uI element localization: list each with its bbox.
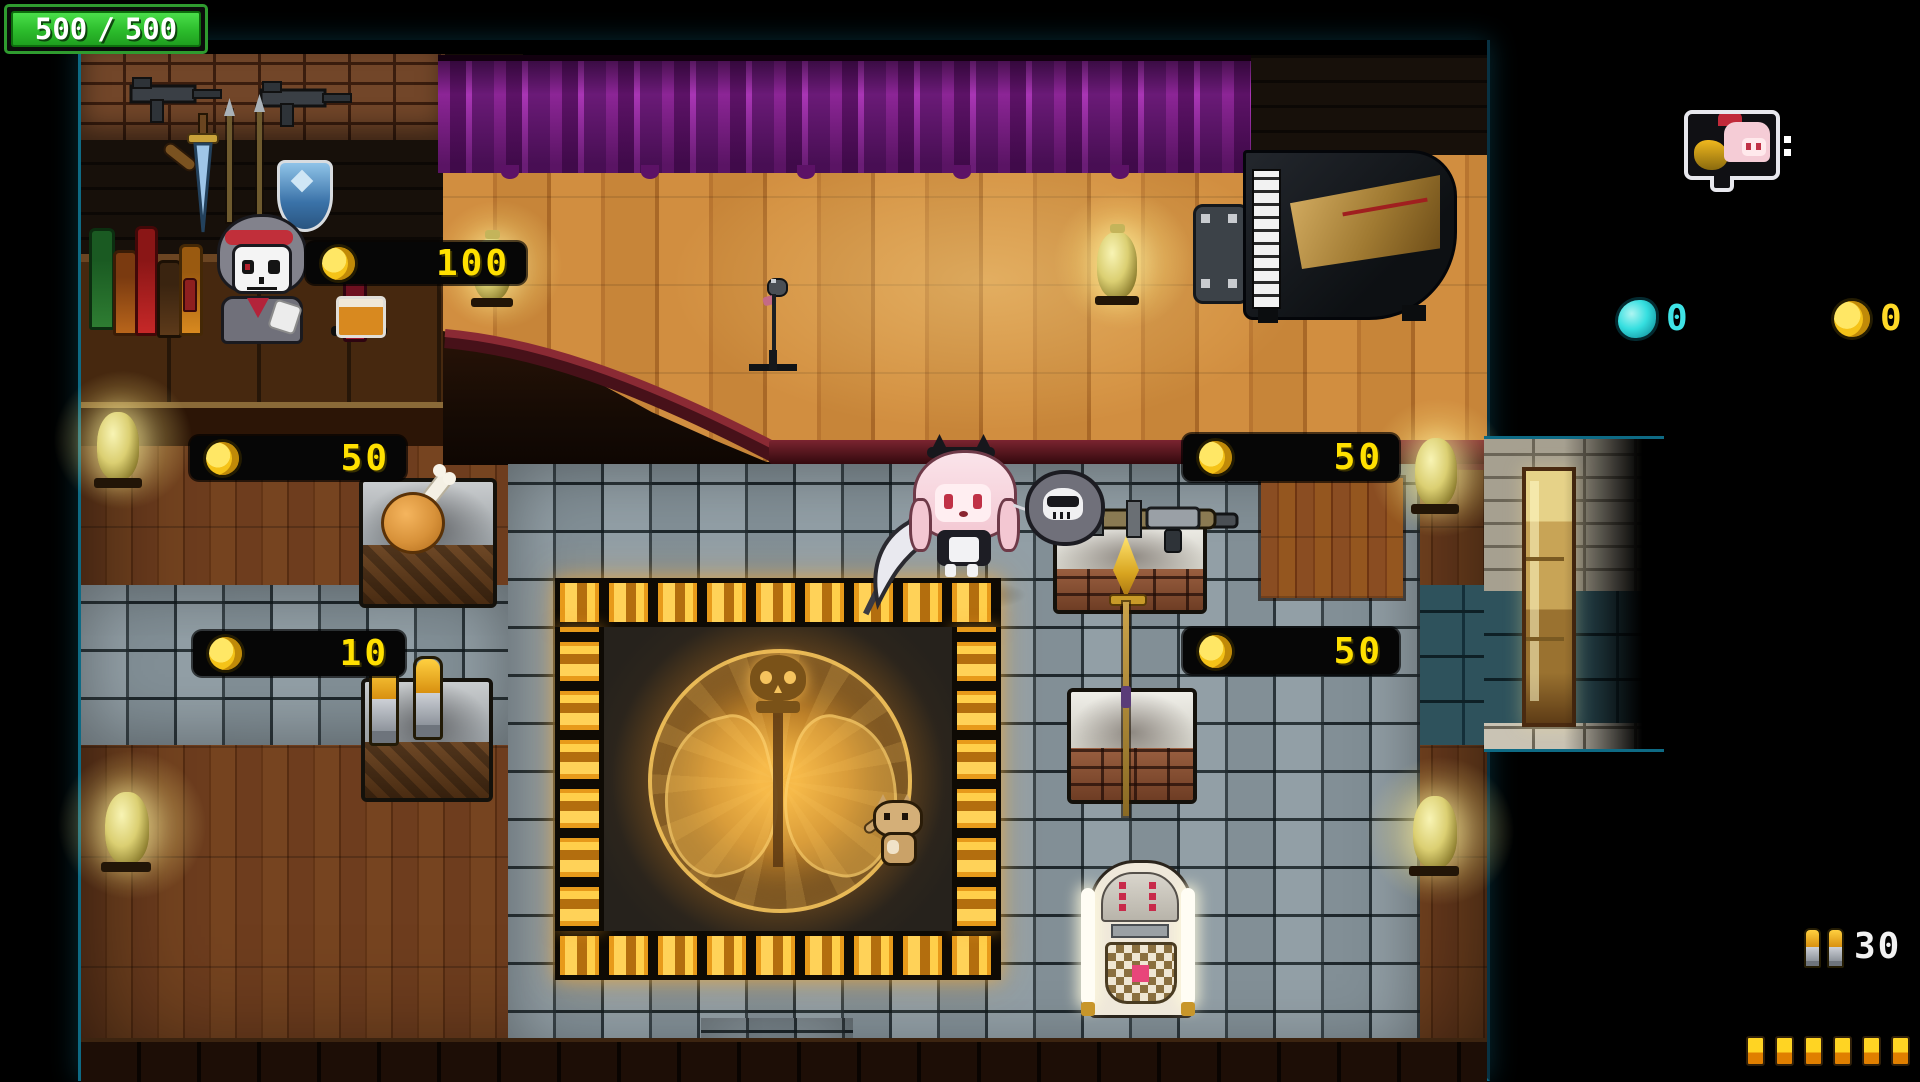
game-scene: 100 50 10 50 50 — [0, 0, 1920, 1080]
teal-tile-strip — [1420, 585, 1487, 745]
urn-finial — [1110, 224, 1125, 233]
golden-urn-lamp — [97, 412, 139, 480]
shield-emblem — [291, 170, 314, 193]
urn-base — [94, 478, 142, 488]
golden-urn-lamp — [1415, 438, 1457, 506]
curtain-fold — [501, 165, 519, 179]
health-separator: / — [97, 12, 114, 46]
rifle-bullets-icon — [1804, 926, 1844, 968]
price-tag-golden-spear[interactable]: 50 — [1183, 628, 1399, 674]
health-current: 500 — [35, 12, 87, 46]
rune-border-bottom — [555, 931, 1001, 980]
exit-corridor — [1484, 436, 1664, 752]
coin-icon — [1199, 441, 1232, 474]
golden-urn-lamp — [1097, 232, 1137, 298]
skull-balloon — [1025, 470, 1105, 546]
jukebox-slot — [1111, 924, 1169, 938]
health-bar: 500 / 500 — [4, 4, 208, 54]
bubble-dot — [1784, 149, 1791, 156]
gem-count: 0 — [1666, 298, 1690, 339]
wall-smg-icon — [253, 72, 357, 134]
hood-red-band — [225, 230, 293, 245]
sigil-skull-icon — [750, 655, 806, 701]
price-value: 10 — [340, 633, 389, 674]
ammo-counter: 30 — [1804, 926, 1901, 968]
gold-coin-icon — [1834, 301, 1870, 337]
price-tag-roast-chicken[interactable]: 50 — [190, 436, 406, 480]
curtain-fold — [953, 165, 971, 179]
jukebox[interactable] — [1081, 860, 1195, 1012]
jukebox-tube — [1081, 888, 1095, 1006]
player-dress — [937, 530, 991, 566]
piano-stool — [1193, 204, 1249, 304]
soul-gem-icon — [1618, 300, 1656, 338]
price-tag-rocket-launcher[interactable]: 50 — [1183, 434, 1399, 481]
golden-urn-lamp — [1413, 796, 1457, 868]
urn-base — [1409, 866, 1459, 876]
ammo-reserve-pips — [1746, 1036, 1910, 1066]
wall-spear-icon — [257, 106, 262, 218]
health-max: 500 — [125, 12, 177, 46]
health-bar-fill: 500 / 500 — [11, 11, 201, 47]
coin-count: 0 — [1880, 298, 1904, 339]
skull-face — [232, 244, 292, 294]
urn-base — [1095, 296, 1139, 305]
shop-item-roast-chicken[interactable] — [381, 468, 461, 560]
ammo-pip — [1833, 1036, 1852, 1066]
curtain-fold — [641, 165, 659, 179]
jukebox-tube — [1181, 888, 1195, 1006]
ammo-pip — [1775, 1036, 1794, 1066]
sigil-skull-jaw — [756, 701, 800, 713]
wine-bottle-neck — [183, 278, 197, 312]
rug-field — [604, 627, 952, 931]
shop-pedestal — [1067, 688, 1197, 804]
tavern-room: 100 50 10 50 50 — [78, 40, 1490, 1081]
coin-icon — [1199, 635, 1232, 668]
player-face — [935, 484, 991, 522]
gem-counter: 0 — [1618, 298, 1690, 339]
price-tag-bar-drink[interactable]: 100 — [306, 242, 526, 284]
ammo-pip — [1862, 1036, 1881, 1066]
partner-head — [1724, 122, 1770, 162]
golden-urn-lamp — [105, 792, 149, 864]
side-hair — [909, 498, 932, 552]
ammo-pip — [1746, 1036, 1765, 1066]
curtain-fold — [797, 165, 815, 179]
whiskey-glass[interactable] — [336, 296, 386, 338]
coin-icon — [209, 637, 242, 670]
skeleton-bartender[interactable] — [213, 208, 305, 342]
pet-cat[interactable] — [863, 792, 927, 866]
piano-strings — [1290, 175, 1440, 269]
rune-border-left — [555, 627, 604, 931]
wall-spear-icon — [227, 110, 232, 222]
urn-base — [101, 862, 151, 872]
bottle-green — [89, 228, 115, 330]
price-tag-ammo-pack[interactable]: 10 — [193, 631, 405, 676]
sigil-stem — [773, 697, 783, 867]
curtain-fold — [1111, 165, 1129, 179]
stage-curtain — [438, 55, 1253, 173]
price-value: 100 — [436, 243, 510, 284]
coin-counter: 0 — [1834, 298, 1904, 339]
coin-icon — [206, 442, 239, 475]
urn-base — [471, 298, 513, 307]
urn-base — [1411, 504, 1459, 514]
ammo-pip — [1804, 1036, 1823, 1066]
coin-icon — [322, 247, 355, 280]
apron — [949, 537, 979, 562]
ammo-count: 30 — [1854, 926, 1901, 967]
piano-keys — [1252, 169, 1281, 309]
rune-border-right — [952, 627, 1001, 931]
jukebox-grille — [1105, 942, 1177, 1004]
price-value: 50 — [341, 438, 390, 479]
grand-piano — [1243, 150, 1457, 320]
gold-item-icon — [1694, 140, 1728, 170]
bottle-red — [135, 226, 158, 336]
bottom-wall — [81, 1038, 1487, 1082]
price-value: 50 — [1334, 631, 1383, 672]
ammo-pip — [1891, 1036, 1910, 1066]
stage-back-wall — [1251, 55, 1487, 155]
price-value: 50 — [1334, 437, 1383, 478]
bubble-tail — [1710, 176, 1734, 192]
urn-finial — [485, 230, 500, 239]
partner-portrait-bubble[interactable] — [1684, 110, 1804, 198]
summoning-rug[interactable] — [555, 578, 1001, 980]
bubble-dot — [1784, 136, 1791, 143]
corridor-fade — [1564, 439, 1664, 749]
